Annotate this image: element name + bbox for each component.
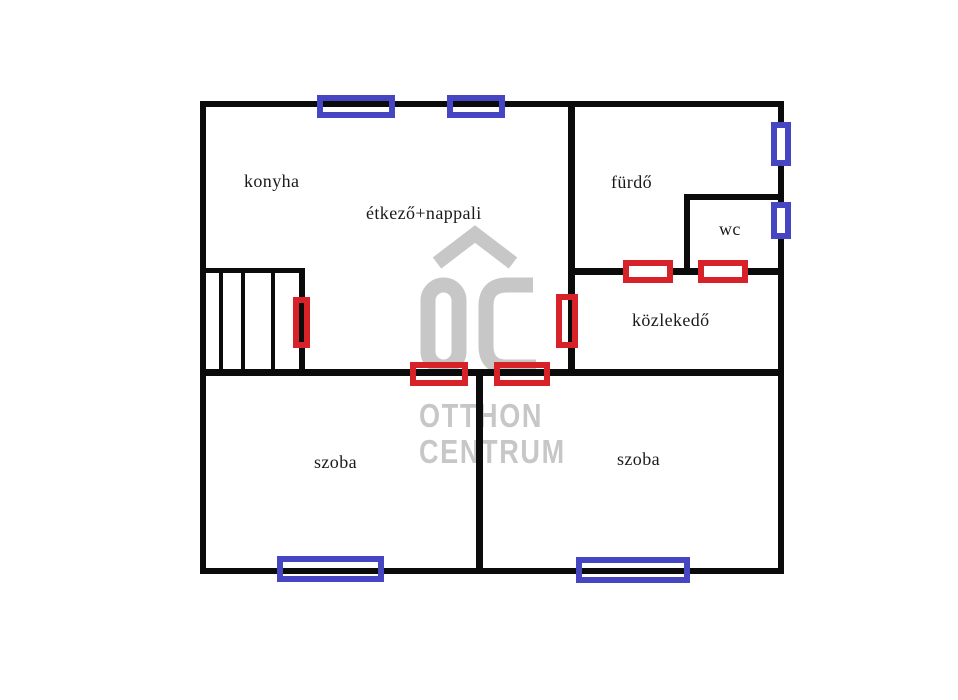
- logo-letter-c: [486, 285, 536, 367]
- wall-main-horizontal: [200, 369, 784, 376]
- window-marker-bedroom-right: [576, 557, 690, 583]
- watermark-line1: OTTHON: [419, 398, 566, 434]
- stairs-top-edge: [200, 268, 305, 273]
- watermark-line2: CENTRUM: [419, 434, 566, 470]
- stairs-tread: [219, 272, 223, 370]
- room-label-szoba-right: szoba: [617, 449, 660, 470]
- door-marker-bedroom-right: [494, 362, 550, 386]
- watermark-text: OTTHON CENTRUM: [419, 398, 566, 470]
- door-marker-living-hall: [556, 294, 578, 348]
- room-label-kozlekedo: közlekedő: [632, 310, 710, 331]
- door-marker-stairs: [293, 297, 310, 348]
- outer-wall-right: [778, 101, 784, 574]
- window-marker-bathroom: [771, 122, 791, 166]
- wall-bathroom-hall-divider: [568, 268, 784, 275]
- wall-wc-top: [684, 194, 784, 200]
- room-label-etkezo-nappali: étkező+nappali: [366, 203, 482, 224]
- room-label-wc: wc: [719, 219, 741, 240]
- stairs-tread: [241, 272, 245, 370]
- door-marker-wc: [698, 260, 748, 283]
- outer-wall-left: [200, 101, 206, 574]
- stairs-tread: [271, 272, 275, 370]
- window-marker-top-right: [447, 95, 505, 118]
- wall-wc-left: [684, 194, 690, 275]
- window-marker-bedroom-left: [277, 556, 384, 582]
- window-marker-wc: [771, 202, 791, 239]
- floor-plan: OTTHON CENTRUM konyha étkező+nappali für…: [0, 0, 958, 700]
- room-label-furdo: fürdő: [611, 172, 652, 193]
- wall-bedroom-divider: [476, 369, 483, 574]
- door-marker-bathroom: [623, 260, 673, 283]
- room-label-konyha: konyha: [244, 171, 299, 192]
- logo-roof-icon: [437, 234, 513, 263]
- window-marker-top-left: [317, 95, 395, 118]
- room-label-szoba-left: szoba: [314, 452, 357, 473]
- logo-letter-o: [428, 285, 459, 367]
- door-marker-bedroom-left: [410, 362, 468, 386]
